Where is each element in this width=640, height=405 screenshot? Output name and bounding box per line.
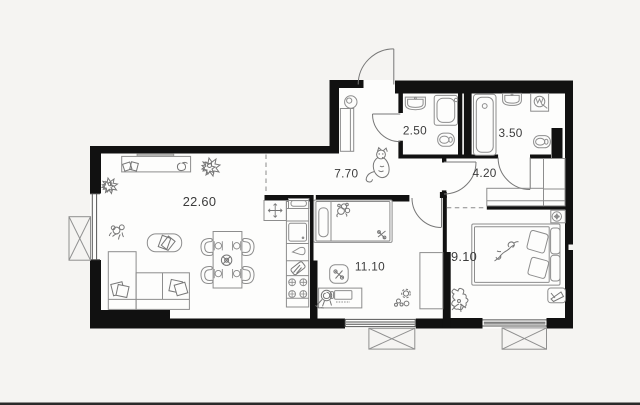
svg-text:4.20: 4.20 (473, 166, 497, 180)
svg-text:11.10: 11.10 (355, 259, 385, 273)
svg-text:2.50: 2.50 (403, 123, 427, 137)
svg-text:9.10: 9.10 (451, 249, 477, 264)
svg-text:3.50: 3.50 (499, 126, 523, 140)
svg-text:7.70: 7.70 (334, 167, 358, 181)
svg-text:22.60: 22.60 (183, 194, 217, 209)
